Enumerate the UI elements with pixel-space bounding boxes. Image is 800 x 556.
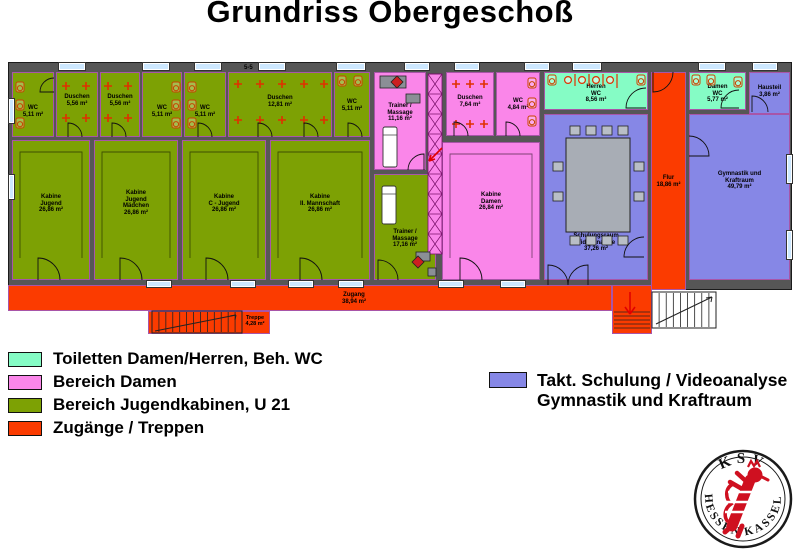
window bbox=[194, 62, 222, 71]
label-treppe-1: Treppe4,28 m² bbox=[238, 315, 272, 327]
window bbox=[58, 62, 86, 71]
legend-swatch-pink bbox=[8, 375, 42, 390]
room-label-damen-wc: DamenWC5,77 m² bbox=[690, 84, 745, 104]
legend-item-zugaenge: Zugänge / Treppen bbox=[8, 418, 323, 438]
window bbox=[572, 62, 602, 71]
window bbox=[8, 174, 15, 200]
room-kabine-jugend: KabineJugend26,86 m² bbox=[12, 140, 90, 280]
window bbox=[786, 230, 793, 260]
room-kabine-jugend-maedchen: KabineJugendMädchen26,86 m² bbox=[94, 140, 178, 280]
legend-swatch-teal bbox=[8, 352, 42, 367]
legend-label: Toiletten Damen/Herren, Beh. WC bbox=[53, 349, 323, 369]
window bbox=[752, 62, 778, 71]
room-junction bbox=[612, 285, 652, 334]
room-wc-4: WC5,11 m² bbox=[334, 72, 370, 137]
legend-item-damen: Bereich Damen bbox=[8, 372, 323, 392]
room-schulungsraum: SchulungsraumVideoanalyse37,26 m² bbox=[544, 114, 648, 280]
legend-left: Toiletten Damen/Herren, Beh. WC Bereich … bbox=[8, 349, 323, 441]
legend-label: Gymnastik und Kraftraum bbox=[537, 390, 787, 410]
room-duschen-3: Duschen12,81 m² bbox=[228, 72, 332, 137]
room-label-herren-wc: HerrenWC8,56 m² bbox=[545, 84, 647, 104]
legend-label: Bereich Jugendkabinen, U 21 bbox=[53, 395, 290, 415]
page-title: Grundriss Obergeschoß bbox=[0, 0, 780, 30]
legend-item-toiletten: Toiletten Damen/Herren, Beh. WC bbox=[8, 349, 323, 369]
room-label-kabine-jugend: KabineJugend26,86 m² bbox=[13, 194, 89, 214]
room-label-duschen-2: Duschen5,56 m² bbox=[101, 94, 139, 107]
room-label-schulungsraum: SchulungsraumVideoanalyse37,26 m² bbox=[545, 233, 647, 253]
window bbox=[230, 280, 256, 288]
label-treppe-2: Treppe3,86 m² bbox=[680, 303, 714, 315]
room-wc-3: WC5,11 m² bbox=[184, 72, 226, 137]
window bbox=[500, 280, 526, 288]
window bbox=[438, 280, 464, 288]
room-hausteil: Hausteil3,86 m² bbox=[749, 72, 790, 114]
window bbox=[146, 280, 172, 288]
room-label-wc-4: WC5,11 m² bbox=[335, 99, 369, 112]
room-label-kabine-jugend-maedchen: KabineJugendMädchen26,86 m² bbox=[95, 190, 177, 216]
window bbox=[142, 62, 170, 71]
room-label-kabine-damen: KabineDamen26,84 m² bbox=[443, 192, 539, 212]
legend-label: Bereich Damen bbox=[53, 372, 177, 392]
legend-label: Zugänge / Treppen bbox=[53, 418, 204, 438]
room-kabine-c-jugend: KabineC - Jugend26,86 m² bbox=[182, 140, 266, 280]
legend-swatch-green bbox=[8, 398, 42, 413]
window bbox=[258, 62, 286, 71]
room-flur: Flur18,86 m² bbox=[651, 72, 686, 290]
room-label-zugang: Zugang38,94 m² bbox=[324, 292, 384, 305]
window bbox=[524, 62, 550, 71]
window bbox=[288, 280, 314, 288]
room-kabine-damen: KabineDamen26,84 m² bbox=[442, 142, 540, 280]
room-wc-damen: WC4,84 m² bbox=[496, 72, 540, 136]
room-trainer-massage-1: Trainer /Massage11,16 m² bbox=[374, 72, 426, 170]
room-trainer-massage-2: Trainer /Massage17,16 m² bbox=[374, 174, 436, 280]
room-label-hausteil: Hausteil3,86 m² bbox=[750, 85, 789, 98]
room-wc-1: WC5,11 m² bbox=[12, 72, 54, 137]
legend-label: Takt. Schulung / Videoanalyse bbox=[537, 370, 787, 390]
window bbox=[336, 62, 366, 71]
legend-swatch-purple bbox=[489, 372, 527, 388]
room-label-gymnastik-kraftraum: Gymnastik undKraftraum49,79 m² bbox=[690, 171, 789, 191]
window bbox=[404, 62, 430, 71]
room-duschen-1: Duschen5,56 m² bbox=[56, 72, 98, 137]
ksv-hessen-kassel-logo: KSV HESSEN KASSEL bbox=[692, 444, 794, 554]
room-duschen-damen: Duschen7,64 m² bbox=[446, 72, 494, 136]
legend-item-jugendkabinen: Bereich Jugendkabinen, U 21 bbox=[8, 395, 323, 415]
floorplan: WC5,11 m²Duschen5,56 m²Duschen5,56 m²WC5… bbox=[8, 62, 793, 334]
room-label-duschen-1: Duschen5,56 m² bbox=[57, 94, 97, 107]
window bbox=[8, 98, 15, 124]
room-label-flur: Flur18,86 m² bbox=[652, 175, 685, 188]
room-kabine-2-mannschaft: KabineII. Mannschaft26,86 m² bbox=[270, 140, 370, 280]
room-duschen-2: Duschen5,56 m² bbox=[100, 72, 140, 137]
room-label-trainer-massage-1: Trainer /Massage11,16 m² bbox=[375, 103, 425, 123]
room-label-duschen-3: Duschen12,81 m² bbox=[229, 95, 331, 108]
room-wc-2: WC5,11 m² bbox=[142, 72, 182, 137]
room-label-wc-damen: WC4,84 m² bbox=[497, 98, 539, 111]
window bbox=[786, 154, 793, 184]
window bbox=[454, 62, 480, 71]
window bbox=[698, 62, 726, 71]
room-label-trainer-massage-2: Trainer /Massage17,16 m² bbox=[375, 229, 435, 249]
room-damen-wc: DamenWC5,77 m² bbox=[689, 72, 746, 110]
legend-swatch-orange bbox=[8, 421, 42, 436]
room-label-wc-3: WC5,11 m² bbox=[185, 105, 225, 118]
room-label-duschen-damen: Duschen7,64 m² bbox=[447, 95, 493, 108]
room-label-wc-1: WC5,11 m² bbox=[13, 105, 53, 118]
window bbox=[338, 280, 364, 288]
room-herren-wc: HerrenWC8,56 m² bbox=[544, 72, 648, 110]
room-gymnastik-kraftraum: Gymnastik undKraftraum49,79 m² bbox=[689, 114, 790, 280]
room-label-wc-2: WC5,11 m² bbox=[143, 105, 181, 118]
room-label-kabine-2-mannschaft: KabineII. Mannschaft26,86 m² bbox=[271, 194, 369, 214]
room-zugang: Zugang38,94 m² bbox=[8, 285, 612, 311]
room-label-kabine-c-jugend: KabineC - Jugend26,86 m² bbox=[183, 194, 265, 214]
legend-right: Takt. Schulung / Videoanalyse Gymnastik … bbox=[489, 370, 787, 410]
